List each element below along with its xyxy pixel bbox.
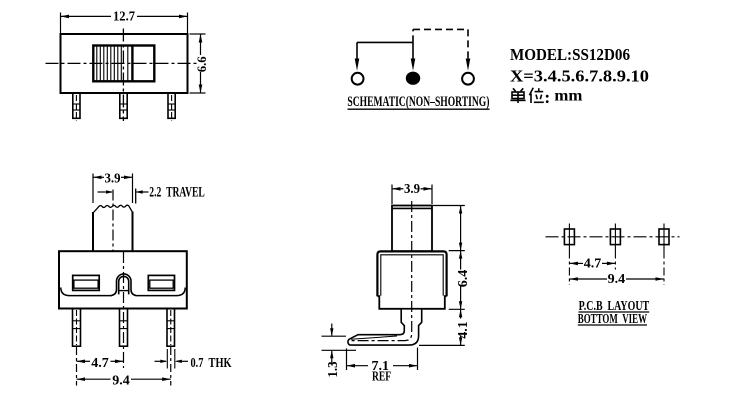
- svg-text:mm: mm: [554, 87, 583, 104]
- svg-text:2.2 TRAVEL: 2.2 TRAVEL: [149, 184, 205, 200]
- svg-text:MODEL:SS12D06: MODEL:SS12D06: [510, 45, 630, 64]
- svg-text:REF: REF: [372, 370, 391, 385]
- svg-text:1.3: 1.3: [326, 362, 341, 378]
- svg-text:3.9: 3.9: [404, 182, 420, 197]
- svg-text:9.4: 9.4: [608, 272, 626, 287]
- svg-text:3.9: 3.9: [105, 172, 121, 187]
- svg-text:SCHEMATIC(NON–SHORTING): SCHEMATIC(NON–SHORTING): [347, 94, 489, 110]
- svg-text:6.4: 6.4: [456, 270, 471, 288]
- svg-text:0.7 THK: 0.7 THK: [191, 356, 232, 371]
- svg-text:4.7: 4.7: [584, 257, 602, 272]
- svg-text:6.6: 6.6: [194, 56, 209, 72]
- svg-text:X=3.4.5.6.7.8.9.10: X=3.4.5.6.7.8.9.10: [510, 67, 649, 86]
- svg-text:4.1: 4.1: [456, 321, 471, 339]
- svg-text:9.4: 9.4: [112, 373, 130, 388]
- svg-text:12.7: 12.7: [113, 10, 135, 25]
- svg-text:BOTTOM VIEW: BOTTOM VIEW: [578, 311, 648, 326]
- svg-text:4.7: 4.7: [91, 356, 109, 371]
